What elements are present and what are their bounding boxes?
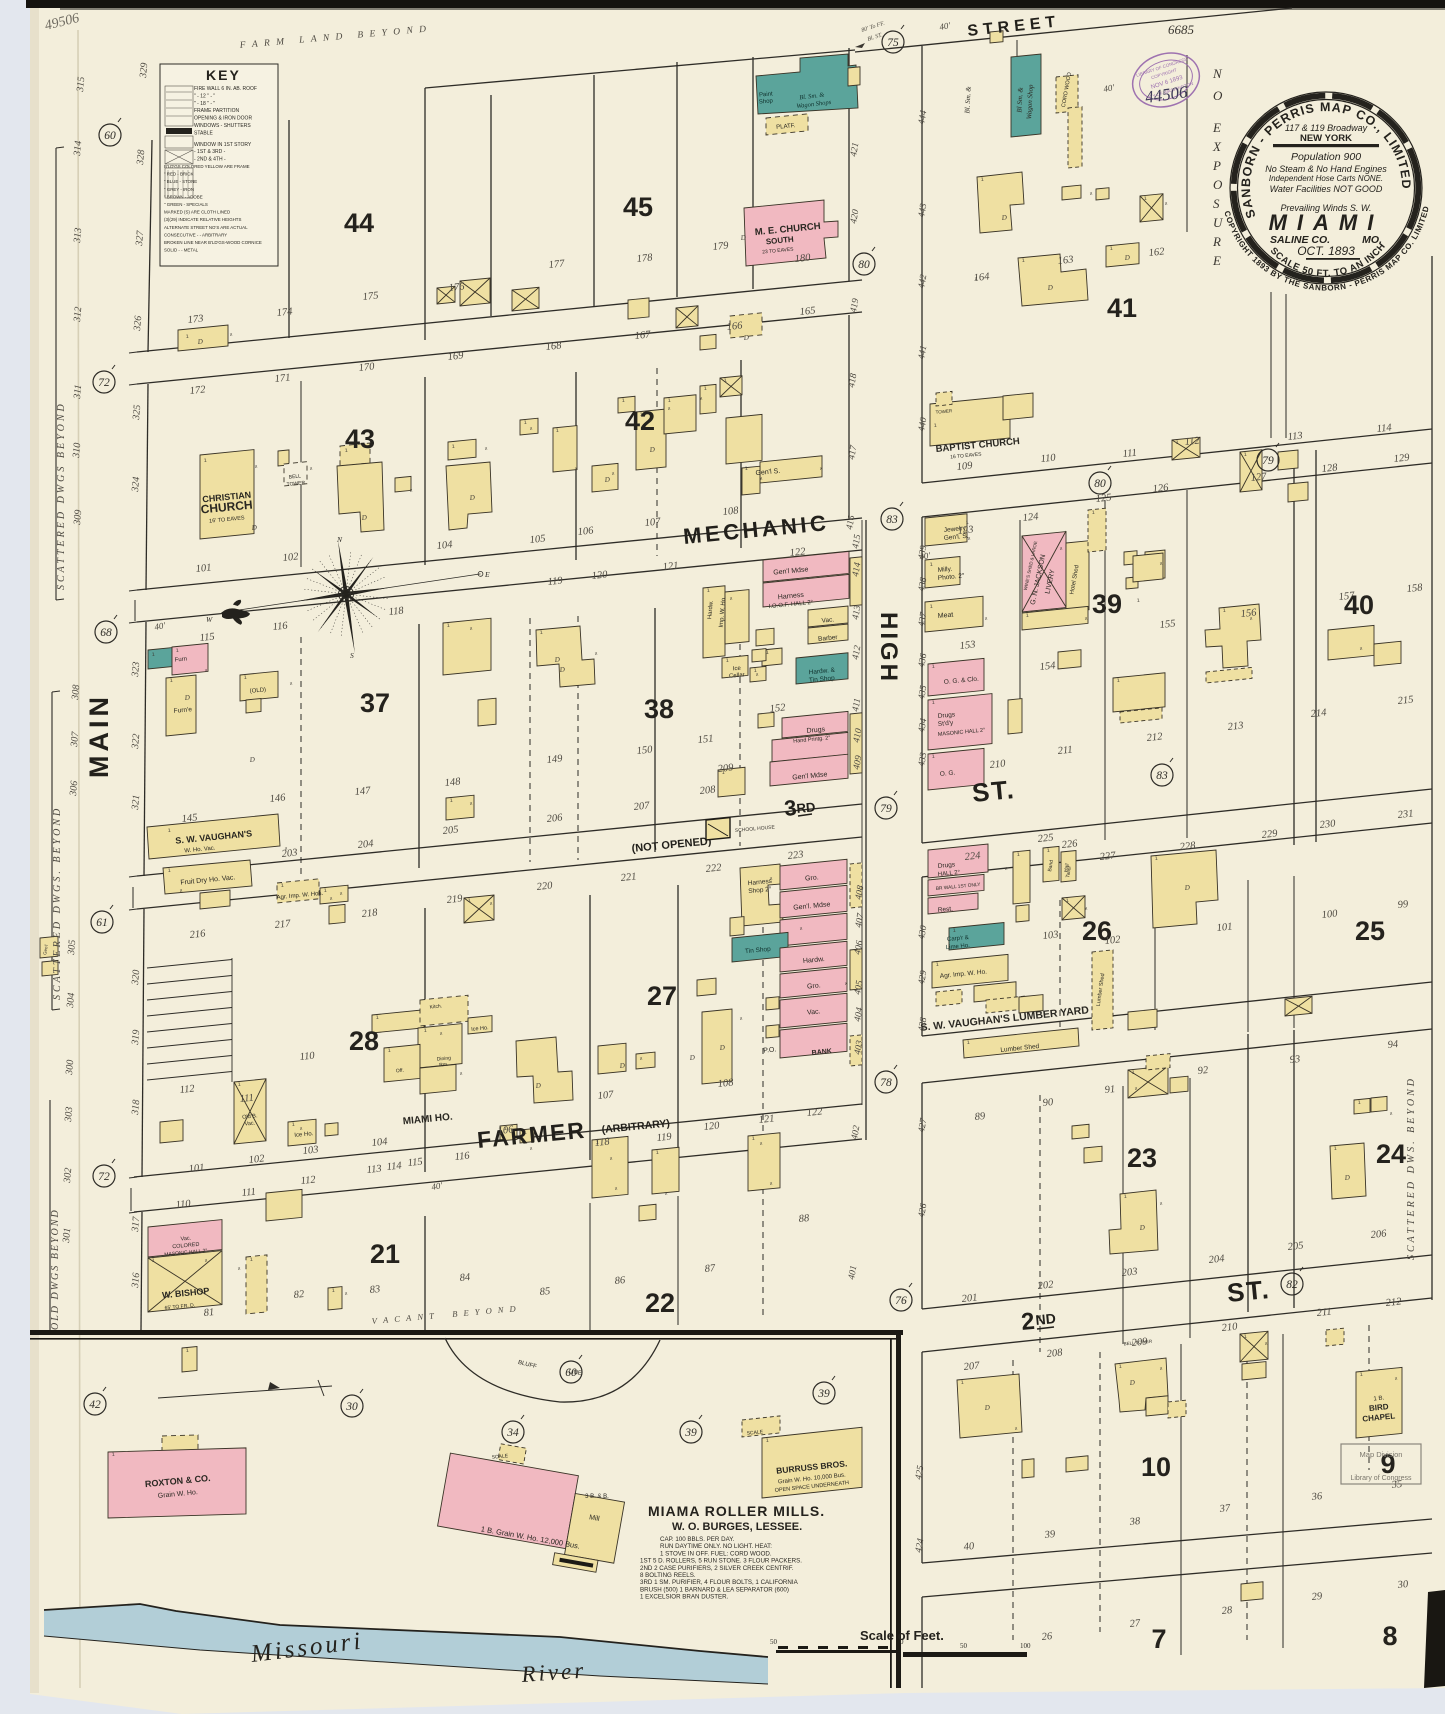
svg-text:313: 313 xyxy=(72,227,84,244)
svg-text:150: 150 xyxy=(636,744,654,757)
svg-text:207: 207 xyxy=(963,1360,981,1373)
svg-text:94: 94 xyxy=(1387,1039,1399,1051)
svg-text:180: 180 xyxy=(794,252,812,265)
svg-text:N: N xyxy=(1212,66,1223,81)
svg-text:99: 99 xyxy=(1397,899,1409,911)
svg-text:120: 120 xyxy=(591,569,609,582)
svg-text:93: 93 xyxy=(1289,1054,1301,1066)
svg-text:23: 23 xyxy=(1127,1143,1157,1173)
svg-text:231: 231 xyxy=(1397,808,1414,821)
svg-text:216: 216 xyxy=(189,928,207,941)
svg-text:OCT. 1893: OCT. 1893 xyxy=(1297,244,1355,258)
svg-text:102: 102 xyxy=(282,551,300,564)
svg-text:205: 205 xyxy=(1287,1240,1304,1253)
svg-text:217: 217 xyxy=(274,918,292,931)
svg-text:158: 158 xyxy=(1406,582,1424,595)
svg-text:" - 18 " - ": " - 18 " - " xyxy=(194,101,215,107)
svg-text:26: 26 xyxy=(1041,1631,1053,1643)
svg-text:178: 178 xyxy=(636,252,654,265)
svg-text:ST.: ST. xyxy=(971,774,1017,808)
svg-text:24: 24 xyxy=(1376,1139,1406,1169)
svg-text:314: 314 xyxy=(72,140,84,157)
svg-text:128: 128 xyxy=(1321,462,1339,475)
svg-text:316: 316 xyxy=(130,1272,142,1289)
svg-text:E: E xyxy=(1212,253,1221,268)
svg-text:302: 302 xyxy=(62,1167,74,1184)
svg-text:Rm.: Rm. xyxy=(439,1062,449,1069)
svg-text:O: O xyxy=(1213,88,1223,103)
svg-text:91: 91 xyxy=(1104,1084,1116,1096)
svg-text:E: E xyxy=(1212,120,1221,135)
svg-text:105: 105 xyxy=(529,533,546,546)
svg-text:318: 318 xyxy=(130,1099,142,1116)
svg-text:80: 80 xyxy=(1094,478,1106,490)
svg-text:119: 119 xyxy=(656,1131,673,1144)
svg-text:100: 100 xyxy=(1321,908,1339,921)
svg-text:D: D xyxy=(983,1404,990,1413)
svg-text:MIAMI: MIAMI xyxy=(1269,210,1384,235)
svg-text:221: 221 xyxy=(620,871,637,884)
svg-text:NEW YORK: NEW YORK xyxy=(1300,133,1352,144)
svg-text:SCATTERED DWS. BEYOND: SCATTERED DWS. BEYOND xyxy=(1406,1076,1417,1260)
svg-text:83: 83 xyxy=(1156,770,1168,782)
svg-text:21: 21 xyxy=(370,1239,400,1269)
svg-text:" BROWN - ADOBE: " BROWN - ADOBE xyxy=(164,194,203,199)
svg-text:208: 208 xyxy=(1046,1347,1064,1360)
svg-text:113: 113 xyxy=(1287,430,1303,443)
svg-text:202: 202 xyxy=(1037,1279,1055,1292)
svg-text:174: 174 xyxy=(276,306,294,319)
svg-text:D: D xyxy=(742,334,749,343)
svg-text:D: D xyxy=(718,1044,725,1053)
svg-text:175: 175 xyxy=(362,290,379,303)
svg-text:Independent Hose Carts NONE.: Independent Hose Carts NONE. xyxy=(1269,174,1383,183)
svg-text:D: D xyxy=(558,666,565,675)
svg-text:50: 50 xyxy=(960,1642,968,1650)
svg-text:323: 323 xyxy=(130,661,142,678)
svg-text:10: 10 xyxy=(1141,1452,1171,1482)
svg-text:206: 206 xyxy=(1370,1228,1388,1241)
svg-text:226: 226 xyxy=(1061,838,1079,851)
svg-text:171: 171 xyxy=(274,372,291,385)
svg-text:22: 22 xyxy=(645,1288,675,1318)
svg-text:27: 27 xyxy=(1129,1618,1141,1630)
svg-text:STABLE: STABLE xyxy=(194,130,213,136)
svg-text:307: 307 xyxy=(69,730,81,748)
svg-text:2ND 2 CASE PURIFIERS, 2 SILVER: 2ND 2 CASE PURIFIERS, 2 SILVER CREEK CEN… xyxy=(640,1565,794,1572)
svg-text:" GREY - IRON: " GREY - IRON xyxy=(164,187,194,192)
svg-text:110: 110 xyxy=(175,1198,192,1211)
svg-text:D: D xyxy=(1183,884,1190,893)
svg-text:322: 322 xyxy=(130,733,142,750)
svg-text:39: 39 xyxy=(684,1427,697,1439)
svg-text:108: 108 xyxy=(722,505,740,518)
svg-text:" RED - BRICK: " RED - BRICK xyxy=(164,172,193,177)
svg-text:35: 35 xyxy=(1390,1479,1403,1491)
svg-text:321: 321 xyxy=(130,794,142,811)
svg-text:81: 81 xyxy=(203,1307,215,1319)
svg-text:169: 169 xyxy=(447,350,465,363)
svg-text:203: 203 xyxy=(281,847,298,860)
svg-text:325: 325 xyxy=(131,404,143,421)
svg-text:W: W xyxy=(206,615,213,624)
svg-text:228: 228 xyxy=(1179,840,1197,853)
svg-text:MARKED (S) ARE CLOTH LINED: MARKED (S) ARE CLOTH LINED xyxy=(164,210,230,215)
svg-text:61: 61 xyxy=(96,917,108,929)
svg-text:3: 3 xyxy=(783,795,798,821)
svg-text:320: 320 xyxy=(130,969,142,986)
svg-text:38: 38 xyxy=(644,694,674,724)
svg-text:37: 37 xyxy=(1218,1503,1231,1515)
svg-text:125: 125 xyxy=(1095,492,1112,505)
svg-text:121: 121 xyxy=(662,560,679,573)
svg-text:28: 28 xyxy=(349,1026,379,1056)
svg-text:E: E xyxy=(484,570,490,579)
svg-text:" BLUE - STONE: " BLUE - STONE xyxy=(164,179,197,184)
svg-text:107: 107 xyxy=(597,1089,615,1102)
svg-text:ST.: ST. xyxy=(1226,1274,1272,1308)
svg-text:146: 146 xyxy=(269,792,287,805)
svg-text:WINDOW IN 1ST STORY: WINDOW IN 1ST STORY xyxy=(194,142,252,148)
svg-text:OPENING & IRON DOOR: OPENING & IRON DOOR xyxy=(194,116,252,122)
svg-text:FIRE WALL 6 IN. AB. ROOF: FIRE WALL 6 IN. AB. ROOF xyxy=(194,86,257,92)
svg-text:Population 900: Population 900 xyxy=(1291,151,1361,163)
svg-text:310: 310 xyxy=(71,442,83,459)
svg-text:115: 115 xyxy=(407,1156,423,1169)
svg-text:79: 79 xyxy=(1262,455,1274,467)
svg-text:No Steam & No Hand Engines: No Steam & No Hand Engines xyxy=(1265,164,1387,174)
svg-text:301: 301 xyxy=(61,1227,73,1244)
svg-text:123: 123 xyxy=(957,524,974,537)
svg-text:211: 211 xyxy=(1316,1306,1332,1319)
svg-text:176: 176 xyxy=(448,281,466,294)
svg-text:MIAMA ROLLER MILLS.: MIAMA ROLLER MILLS. xyxy=(648,1503,825,1519)
svg-text:44: 44 xyxy=(344,208,374,238)
svg-text:155: 155 xyxy=(1159,618,1176,631)
svg-text:111: 111 xyxy=(239,1093,254,1105)
svg-text:127: 127 xyxy=(1250,471,1268,484)
svg-text:214: 214 xyxy=(1310,707,1328,720)
svg-text:D: D xyxy=(1123,254,1130,263)
svg-text:Water Facilities NOT GOOD: Water Facilities NOT GOOD xyxy=(1270,184,1383,194)
svg-text:106: 106 xyxy=(577,525,595,538)
svg-text:84: 84 xyxy=(459,1272,471,1284)
svg-text:215: 215 xyxy=(1397,694,1414,707)
svg-text:Vac.: Vac. xyxy=(807,1008,821,1016)
svg-text:201: 201 xyxy=(961,1292,978,1305)
svg-text:326: 326 xyxy=(132,315,144,332)
svg-text:111: 111 xyxy=(1122,448,1137,460)
svg-text:1 B.: 1 B. xyxy=(1373,1395,1385,1402)
svg-text:210: 210 xyxy=(1221,1321,1239,1334)
svg-text:167: 167 xyxy=(634,329,652,342)
svg-text:107: 107 xyxy=(644,516,662,529)
svg-text:204: 204 xyxy=(357,838,375,851)
svg-text:30: 30 xyxy=(345,1401,358,1413)
svg-text:D: D xyxy=(250,524,257,533)
svg-text:2: 2 xyxy=(1020,1308,1036,1336)
svg-text:315: 315 xyxy=(75,76,87,93)
svg-text:41: 41 xyxy=(1107,293,1137,323)
svg-text:212: 212 xyxy=(1385,1296,1403,1309)
svg-text:112: 112 xyxy=(1184,435,1201,448)
svg-text:223: 223 xyxy=(787,849,804,862)
svg-text:154: 154 xyxy=(1039,660,1057,673)
svg-text:85: 85 xyxy=(539,1286,551,1298)
svg-text:RD: RD xyxy=(796,799,816,816)
svg-text:BRUSH (500) 1 BARNARD & LEA SE: BRUSH (500) 1 BARNARD & LEA SEPARATOR (6… xyxy=(640,1586,789,1593)
svg-text:304: 304 xyxy=(65,992,77,1009)
svg-text:43: 43 xyxy=(345,424,375,454)
svg-text:113: 113 xyxy=(366,1163,382,1176)
svg-text:D: D xyxy=(1046,284,1053,293)
svg-text:40: 40 xyxy=(963,1541,975,1553)
svg-text:42: 42 xyxy=(89,1399,101,1411)
svg-text:KEY: KEY xyxy=(206,67,241,83)
svg-text:" GREEN - SPECIALS: " GREEN - SPECIALS xyxy=(164,202,208,207)
svg-text:1 EXCELSIOR BRAN DUSTER.: 1 EXCELSIOR BRAN DUSTER. xyxy=(640,1594,729,1601)
svg-text:Vac.: Vac. xyxy=(180,1235,192,1242)
svg-text:ALTERNATE STREET NO'S ARE ACTU: ALTERNATE STREET NO'S ARE ACTUAL xyxy=(164,225,248,230)
svg-text:8: 8 xyxy=(1382,1621,1397,1651)
svg-text:Milly.: Milly. xyxy=(938,566,953,574)
svg-text:72: 72 xyxy=(98,377,110,389)
svg-text:25: 25 xyxy=(1355,916,1385,946)
svg-text:S: S xyxy=(350,651,354,660)
svg-text:D: D xyxy=(1138,1224,1145,1233)
svg-text:104: 104 xyxy=(436,539,454,552)
svg-text:114: 114 xyxy=(386,1160,403,1173)
svg-text:83: 83 xyxy=(886,514,898,526)
svg-text:126: 126 xyxy=(1152,482,1170,495)
svg-text:Off.: Off. xyxy=(396,1068,405,1075)
svg-text:208: 208 xyxy=(699,784,717,797)
svg-text:Map Division: Map Division xyxy=(1360,1450,1403,1459)
svg-text:D: D xyxy=(360,514,367,523)
svg-text:121: 121 xyxy=(758,1113,775,1126)
svg-text:306: 306 xyxy=(68,780,80,797)
svg-text:Meat: Meat xyxy=(938,612,954,620)
svg-text:206: 206 xyxy=(546,812,564,825)
svg-text:90: 90 xyxy=(1042,1097,1054,1109)
svg-text:145: 145 xyxy=(181,812,198,825)
svg-text:89: 89 xyxy=(974,1111,986,1123)
svg-text:D: D xyxy=(688,1054,695,1063)
svg-text:D: D xyxy=(1343,1174,1350,1183)
svg-text:Vac.: Vac. xyxy=(244,1120,256,1127)
svg-text:1ST 5 D. ROLLERS, 5 RUN STONE.: 1ST 5 D. ROLLERS, 5 RUN STONE. 3 FLOUR P… xyxy=(640,1558,802,1565)
svg-text:115: 115 xyxy=(199,631,215,644)
svg-text:305: 305 xyxy=(66,939,78,956)
svg-text:300: 300 xyxy=(64,1059,76,1076)
svg-text:N: N xyxy=(336,535,343,544)
svg-text:WINDOWS - SHUTTERS: WINDOWS - SHUTTERS xyxy=(194,123,251,129)
svg-text:FRAME PARTITION: FRAME PARTITION xyxy=(194,108,239,114)
svg-text:308: 308 xyxy=(70,684,82,701)
svg-text:103: 103 xyxy=(302,1144,319,1157)
svg-text:224: 224 xyxy=(964,850,982,863)
svg-text:173: 173 xyxy=(187,313,204,326)
svg-text:76: 76 xyxy=(895,1295,907,1307)
svg-text:110: 110 xyxy=(1040,452,1057,465)
svg-text:120: 120 xyxy=(703,1120,721,1133)
svg-text:327: 327 xyxy=(134,229,146,247)
svg-text:311: 311 xyxy=(72,384,84,400)
svg-text:Rest.: Rest. xyxy=(938,906,954,914)
svg-text:78: 78 xyxy=(880,1077,892,1089)
svg-text:27: 27 xyxy=(647,981,677,1011)
svg-text:CONSECUTIVE - - ARBIT: CONSECUTIVE - - ARBITRARY xyxy=(164,232,227,237)
svg-text:112: 112 xyxy=(179,1083,196,1096)
svg-text:324: 324 xyxy=(130,476,142,493)
svg-text:222: 222 xyxy=(705,862,723,875)
svg-text:101: 101 xyxy=(1216,921,1233,934)
svg-text:D: D xyxy=(248,756,255,765)
svg-text:168: 168 xyxy=(545,340,563,353)
svg-text:209: 209 xyxy=(717,762,735,775)
svg-text:42: 42 xyxy=(625,406,655,436)
svg-text:Library of Congress: Library of Congress xyxy=(1350,1475,1412,1482)
svg-text:110: 110 xyxy=(299,1050,316,1063)
svg-text:" - 12 " - ": " - 12 " - " xyxy=(194,93,215,99)
svg-text:162: 162 xyxy=(1148,246,1166,259)
svg-text:211: 211 xyxy=(1057,744,1073,757)
svg-text:7: 7 xyxy=(1151,1624,1166,1654)
svg-text:170: 170 xyxy=(358,361,376,374)
svg-text:39: 39 xyxy=(817,1388,830,1400)
svg-text:D: D xyxy=(648,446,655,455)
svg-text:Kitch.: Kitch. xyxy=(429,1003,442,1010)
svg-text:BELL: BELL xyxy=(289,473,302,480)
svg-text:86: 86 xyxy=(614,1275,626,1287)
svg-text:U: U xyxy=(1213,215,1224,230)
svg-text:D: D xyxy=(618,1062,625,1071)
svg-text:- 2ND & 4TH -: - 2ND & 4TH - xyxy=(194,157,226,163)
svg-text:212: 212 xyxy=(1146,731,1164,744)
svg-text:177: 177 xyxy=(548,258,566,271)
svg-text:124: 124 xyxy=(1022,511,1040,524)
svg-text:72: 72 xyxy=(98,1171,110,1183)
svg-text:119: 119 xyxy=(547,575,564,588)
svg-text:230: 230 xyxy=(1319,818,1337,831)
svg-text:329: 329 xyxy=(138,62,150,79)
svg-text:30: 30 xyxy=(1396,1579,1409,1591)
svg-text:P.O.: P.O. xyxy=(763,1046,777,1054)
svg-text:163: 163 xyxy=(1057,254,1074,267)
svg-text:147: 147 xyxy=(354,785,372,798)
svg-text:Gro.: Gro. xyxy=(805,874,819,882)
svg-text:D: D xyxy=(468,494,475,503)
svg-text:Vac.: Vac. xyxy=(821,616,834,624)
svg-text:6685: 6685 xyxy=(1168,22,1195,37)
svg-text:D: D xyxy=(534,1082,541,1091)
svg-text:210: 210 xyxy=(989,758,1007,771)
svg-text:118: 118 xyxy=(388,605,405,618)
svg-text:34: 34 xyxy=(506,1427,519,1439)
svg-text:153: 153 xyxy=(959,639,976,652)
svg-text:8 BOLTING REELS.: 8 BOLTING REELS. xyxy=(640,1572,696,1579)
svg-text:151: 151 xyxy=(697,733,714,746)
svg-text:P: P xyxy=(1212,158,1221,173)
svg-text:100: 100 xyxy=(1020,1642,1031,1650)
svg-text:75: 75 xyxy=(887,37,899,49)
svg-text:204: 204 xyxy=(1208,1253,1226,1266)
svg-text:RUN DAYTIME ONLY. NO LIGHT.: RUN DAYTIME ONLY. NO LIGHT. HEAT: xyxy=(660,1543,772,1550)
svg-text:SOLID - - METAL: SOLID - - METAL xyxy=(164,248,199,253)
svg-text:92: 92 xyxy=(1197,1065,1209,1077)
svg-text:36: 36 xyxy=(1310,1491,1323,1503)
svg-text:116: 116 xyxy=(454,1150,471,1163)
svg-text:109: 109 xyxy=(956,460,974,473)
svg-text:317: 317 xyxy=(130,1215,142,1233)
svg-text:103: 103 xyxy=(1042,929,1059,942)
svg-text:37: 37 xyxy=(360,688,390,718)
svg-text:ND: ND xyxy=(1035,1310,1057,1328)
svg-text:165: 165 xyxy=(799,305,816,318)
svg-text:172: 172 xyxy=(189,384,207,397)
svg-text:122: 122 xyxy=(789,546,807,559)
svg-text:166: 166 xyxy=(726,320,744,333)
svg-text:114: 114 xyxy=(1376,422,1393,435)
svg-text:OLD DWGS BEYOND: OLD DWGS BEYOND xyxy=(50,1208,61,1330)
svg-text:BROKEN LINE NEAR B'LD'GS-WOOD: BROKEN LINE NEAR B'LD'GS-WOOD CORNICE xyxy=(164,240,262,245)
svg-text:205: 205 xyxy=(442,824,459,837)
svg-text:39: 39 xyxy=(1092,589,1122,619)
svg-text:28: 28 xyxy=(1221,1605,1233,1617)
svg-text:MO.: MO. xyxy=(1362,234,1382,246)
svg-text:101: 101 xyxy=(188,1162,205,1175)
svg-text:D: D xyxy=(739,234,746,243)
svg-text:203: 203 xyxy=(1121,1266,1138,1279)
svg-text:79: 79 xyxy=(880,803,892,815)
svg-text:D: D xyxy=(1128,1379,1135,1388)
svg-text:D: D xyxy=(603,476,610,485)
svg-text:Bl. Sm. &: Bl. Sm. & xyxy=(963,86,972,114)
svg-text:S: S xyxy=(1213,196,1220,211)
svg-text:157: 157 xyxy=(1338,590,1356,603)
svg-text:220: 220 xyxy=(536,880,554,893)
svg-text:179: 179 xyxy=(712,240,730,253)
svg-text:213: 213 xyxy=(1227,720,1244,733)
svg-text:207: 207 xyxy=(633,800,651,813)
svg-text:319: 319 xyxy=(130,1029,142,1046)
svg-text:Bl Sm. &: Bl Sm. & xyxy=(1015,86,1024,112)
svg-text:209: 209 xyxy=(1131,1336,1149,1349)
svg-text:D: D xyxy=(1000,214,1007,223)
svg-text:SCATTERED DWGS. BEYOND: SCATTERED DWGS. BEYOND xyxy=(52,806,63,1000)
svg-text:29: 29 xyxy=(1311,1591,1323,1603)
svg-text:225: 225 xyxy=(1037,832,1054,845)
svg-text:152: 152 xyxy=(769,702,787,715)
svg-text:MAIN: MAIN xyxy=(84,693,114,778)
svg-text:101: 101 xyxy=(195,562,212,575)
svg-text:Scale of Feet.: Scale of Feet. xyxy=(860,1628,944,1643)
svg-text:229: 229 xyxy=(1261,828,1279,841)
svg-text:River: River xyxy=(520,1658,587,1688)
svg-text:O: O xyxy=(1213,177,1223,192)
svg-text:60: 60 xyxy=(565,1367,577,1379)
svg-text:112: 112 xyxy=(300,1174,317,1187)
svg-text:45: 45 xyxy=(623,192,653,222)
svg-text:219: 219 xyxy=(446,893,464,906)
svg-text:83: 83 xyxy=(369,1284,381,1296)
svg-text:68: 68 xyxy=(100,627,112,639)
svg-text:Gro.: Gro. xyxy=(807,982,821,990)
svg-text:104: 104 xyxy=(371,1136,389,1149)
svg-text:D: D xyxy=(553,656,560,665)
svg-text:50: 50 xyxy=(770,1638,778,1646)
svg-text:X: X xyxy=(1212,139,1222,154)
